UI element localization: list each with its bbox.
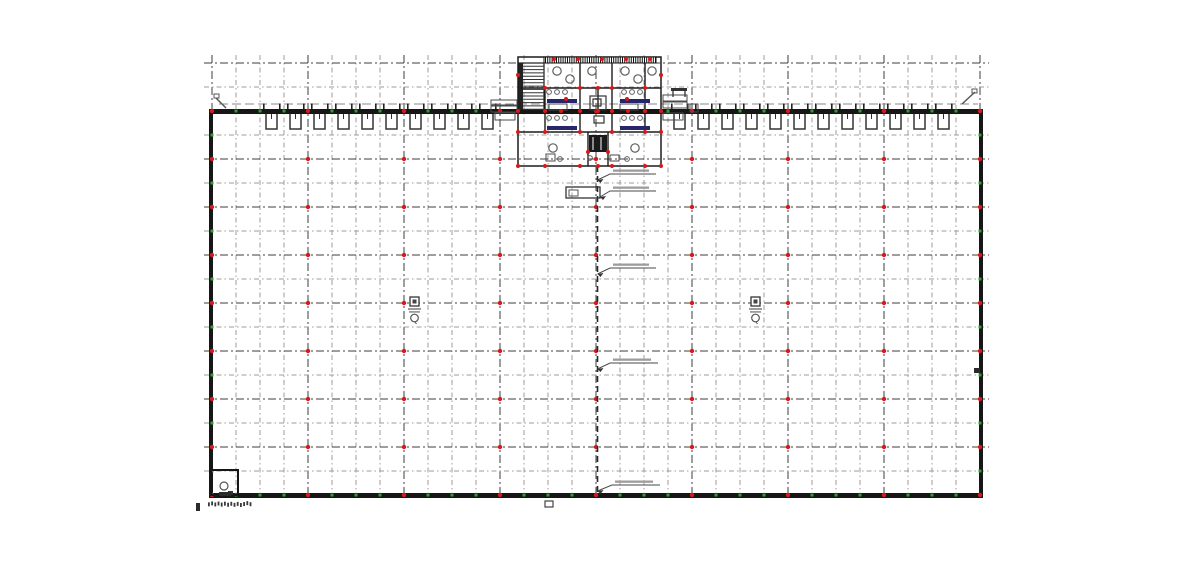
core-column-marker-red — [516, 164, 520, 168]
wall-marker-green — [715, 110, 718, 113]
grid-layer — [204, 55, 989, 493]
core-column-marker-red — [625, 97, 629, 101]
core-bench — [671, 88, 687, 91]
core-column-marker-red — [648, 57, 652, 61]
wall-marker-green — [211, 422, 214, 425]
wall-marker-green — [979, 230, 982, 233]
equipment-label-smudge — [409, 311, 420, 313]
dock-bumper — [407, 104, 409, 110]
column-marker-red — [978, 157, 982, 161]
wall-marker-green — [379, 110, 382, 113]
core-column-marker-red — [624, 57, 628, 61]
core-column-marker-red — [552, 57, 556, 61]
dock-bumper — [351, 104, 353, 110]
wall-marker-green — [211, 230, 214, 233]
core-fixture-circle — [634, 75, 642, 83]
equipment-label-smudge — [749, 308, 762, 310]
column-marker-red — [306, 493, 310, 497]
core-fixture-circle — [588, 67, 596, 75]
wall-marker-green — [979, 134, 982, 137]
dock-bumper — [831, 104, 833, 110]
column-marker-red — [498, 349, 502, 353]
dock-bumper — [375, 104, 377, 110]
dock-bumper — [815, 104, 817, 110]
core-fixture — [663, 95, 687, 101]
dock-bumper — [767, 104, 769, 110]
core-column-marker-red — [643, 109, 647, 113]
title-text-smudge — [246, 501, 248, 505]
dock-bumper — [935, 104, 937, 110]
equipment-symbol-layer — [408, 297, 762, 324]
column-marker-red — [786, 397, 790, 401]
wall-marker-green — [715, 494, 718, 497]
dock-bumper — [911, 104, 913, 110]
column-marker-red — [690, 493, 694, 497]
dock-door-layer — [263, 104, 953, 130]
core-column-marker-red — [659, 73, 663, 77]
wall-marker-green — [355, 494, 358, 497]
equipment-panel-inner — [413, 300, 417, 304]
annotation-text-smudge — [615, 481, 653, 483]
dock-bumper — [455, 104, 457, 110]
dock-bumper — [839, 104, 841, 110]
dock-bumper — [327, 104, 329, 110]
wall-marker-green — [955, 110, 958, 113]
core-fixture-circle-small — [630, 90, 635, 95]
core-column-marker-red — [543, 130, 547, 134]
column-marker-red — [306, 157, 310, 161]
core-fixture-circle-small — [563, 116, 568, 121]
column-marker-red — [786, 445, 790, 449]
core-column-marker-red — [586, 150, 590, 154]
wall-marker-green — [907, 494, 910, 497]
wall-marker-green — [979, 422, 982, 425]
wall-marker-green — [379, 494, 382, 497]
column-marker-red — [402, 493, 406, 497]
core-column-marker-red — [596, 164, 600, 168]
core-column-marker-red — [596, 86, 600, 90]
equipment-drain-symbol — [752, 314, 760, 322]
column-marker-red — [690, 349, 694, 353]
floor-plan-page — [0, 0, 1200, 569]
core-column-marker-red — [659, 109, 663, 113]
floor-plan-canvas — [0, 0, 1200, 569]
core-fixture-circle — [621, 67, 629, 75]
core-column-marker-red — [543, 109, 547, 113]
misc-mark — [219, 492, 231, 496]
annotation-text-smudge — [613, 264, 649, 266]
column-marker-red — [306, 205, 310, 209]
column-marker-red — [210, 205, 214, 209]
dock-bumper — [423, 104, 425, 110]
dock-bumper — [303, 104, 305, 110]
core-fixture-circle — [549, 144, 557, 152]
column-marker-red — [978, 253, 982, 257]
column-marker-red — [498, 493, 502, 497]
column-marker-red — [882, 253, 886, 257]
wall-marker-green — [451, 110, 454, 113]
dock-bumper — [903, 104, 905, 110]
leader-line — [600, 191, 656, 197]
core-column-marker-red — [564, 97, 568, 101]
title-text-smudge — [250, 502, 252, 506]
dock-bumper — [807, 104, 809, 110]
core-column-marker-red — [543, 164, 547, 168]
core-column-marker-red — [600, 57, 604, 61]
wall-marker-green — [739, 494, 742, 497]
wall-marker-green — [355, 110, 358, 113]
annotation-text-smudge — [613, 187, 649, 189]
core-column-marker-red — [610, 86, 614, 90]
wall-marker-green — [739, 110, 742, 113]
core-column-marker-red — [543, 86, 547, 90]
core-fixture-circle — [566, 75, 574, 83]
core-fixture — [663, 102, 687, 108]
column-marker-red — [690, 397, 694, 401]
core-fixture — [495, 113, 515, 120]
dock-bumper — [359, 104, 361, 110]
column-marker-red — [306, 349, 310, 353]
wall-marker-green — [979, 278, 982, 281]
wall-marker-green — [763, 494, 766, 497]
wall-marker-green — [523, 494, 526, 497]
column-marker-red — [402, 301, 406, 305]
wall-marker-green — [667, 110, 670, 113]
corner-room-layer — [211, 470, 238, 495]
wall-marker-green — [931, 110, 934, 113]
ramp-line — [216, 98, 226, 108]
core-column-marker-red — [516, 109, 520, 113]
column-marker-red — [210, 397, 214, 401]
dock-bumper — [479, 104, 481, 110]
column-marker-red — [690, 205, 694, 209]
column-marker-red — [978, 109, 982, 113]
core-column-marker-red — [596, 109, 600, 113]
column-marker-red — [498, 301, 502, 305]
wall-marker-green — [763, 110, 766, 113]
core-column-marker-red — [610, 109, 614, 113]
wall-marker-green — [259, 110, 262, 113]
dock-bumper — [783, 104, 785, 110]
elevator-shaft — [589, 135, 607, 152]
core-fixture-circle-small — [563, 90, 568, 95]
column-marker-red — [882, 157, 886, 161]
core-column-marker-red — [643, 130, 647, 134]
column-marker-red — [402, 253, 406, 257]
joint-detail-box-inner — [569, 190, 578, 196]
core-fixture-circle — [648, 67, 656, 75]
ramp-line — [962, 92, 975, 104]
core-column-marker-red — [578, 86, 582, 90]
restroom-counter — [620, 99, 650, 103]
core-fixture-circle-small — [547, 116, 552, 121]
wall-marker-green — [979, 326, 982, 329]
title-text-smudge — [214, 502, 216, 506]
core-fixture — [610, 155, 619, 161]
dock-bumper — [791, 104, 793, 110]
wall-marker-green — [547, 494, 550, 497]
dock-bumper — [399, 104, 401, 110]
column-marker-red — [882, 493, 886, 497]
annotation-text-smudge — [613, 359, 651, 361]
restroom-counter — [620, 126, 650, 130]
misc-mark — [545, 501, 553, 507]
ramp-mark — [214, 94, 219, 98]
core-fixture-circle-small — [547, 90, 552, 95]
misc-mark — [974, 368, 980, 373]
wall-marker-green — [619, 494, 622, 497]
column-marker-red — [786, 253, 790, 257]
wall-marker-green — [283, 110, 286, 113]
title-text-smudge — [243, 502, 245, 506]
column-marker-red — [882, 205, 886, 209]
dock-bumper — [383, 104, 385, 110]
equipment-label-smudge — [750, 311, 761, 313]
column-marker-red — [882, 397, 886, 401]
wall-marker-green — [859, 494, 862, 497]
core-column-marker-red — [578, 109, 582, 113]
expansion-joint-layer — [566, 166, 660, 494]
core-fixture-circle — [631, 144, 639, 152]
wall-marker-green — [475, 110, 478, 113]
core-column-marker-red — [610, 130, 614, 134]
title-text-smudge — [208, 502, 210, 506]
column-marker-red — [402, 157, 406, 161]
dock-bumper — [879, 104, 881, 110]
dock-bumper — [711, 104, 713, 110]
dock-bumper — [263, 104, 265, 110]
core-column-marker-red — [643, 164, 647, 168]
dock-bumper — [279, 104, 281, 110]
column-marker-red — [498, 157, 502, 161]
core-fixture-circle-small — [638, 90, 643, 95]
column-marker-red — [402, 349, 406, 353]
column-marker-red — [210, 301, 214, 305]
dock-bumper — [287, 104, 289, 110]
misc-mark — [196, 503, 200, 511]
core-column-marker-red — [576, 57, 580, 61]
column-marker-red — [978, 301, 982, 305]
wall-marker-green — [427, 110, 430, 113]
dock-bumper — [863, 104, 865, 110]
corner-room-drain — [220, 482, 228, 490]
wall-marker-green — [907, 110, 910, 113]
annotation-text-smudge — [613, 170, 649, 172]
column-marker-red — [786, 205, 790, 209]
title-text-smudge — [224, 502, 226, 506]
leader-line — [598, 485, 661, 491]
dock-bumper — [951, 104, 953, 110]
wall-marker-green — [211, 326, 214, 329]
equipment-label-smudge — [408, 308, 421, 310]
core-column-marker-red — [578, 130, 582, 134]
column-marker-red — [690, 253, 694, 257]
title-text-smudge — [237, 502, 239, 506]
wall-marker-green — [235, 110, 238, 113]
column-marker-red — [786, 301, 790, 305]
dock-bumper — [735, 104, 737, 110]
wall-marker-green — [667, 494, 670, 497]
wall-marker-green — [979, 374, 982, 377]
dock-bumper — [431, 104, 433, 110]
core-fixture-circle-small — [622, 116, 627, 121]
column-marker-red — [402, 445, 406, 449]
restroom-counter — [547, 126, 577, 130]
core-column-marker-red — [626, 109, 630, 113]
column-marker-red — [402, 205, 406, 209]
core-fixture — [546, 154, 555, 161]
title-text-smudge — [221, 503, 223, 507]
column-marker-red — [402, 109, 406, 113]
dock-bumper — [447, 104, 449, 110]
column-marker-red — [210, 253, 214, 257]
column-marker-red — [594, 157, 598, 161]
wall-marker-green — [451, 494, 454, 497]
wall-marker-green — [643, 494, 646, 497]
dock-bumper — [927, 104, 929, 110]
dock-bumper — [471, 104, 473, 110]
leader-line — [598, 268, 657, 274]
wall-marker-green — [571, 494, 574, 497]
title-text-smudge — [227, 503, 229, 507]
column-marker-red — [210, 109, 214, 113]
column-marker-red — [690, 157, 694, 161]
column-marker-red — [690, 445, 694, 449]
core-column-marker-red — [516, 73, 520, 77]
wall-marker-green — [955, 494, 958, 497]
core-column-marker-red — [559, 109, 563, 113]
column-marker-red — [786, 157, 790, 161]
column-marker-red — [498, 445, 502, 449]
dock-bumper — [855, 104, 857, 110]
wall-marker-green — [475, 494, 478, 497]
wall-marker-green — [427, 494, 430, 497]
column-marker-red — [210, 445, 214, 449]
wall-marker-green — [283, 494, 286, 497]
column-marker-red — [402, 397, 406, 401]
title-text-smudge — [218, 502, 220, 506]
wall-marker-green — [211, 134, 214, 137]
dock-bumper — [887, 104, 889, 110]
dock-bumper — [335, 104, 337, 110]
core-fixture-circle-small — [638, 116, 643, 121]
column-marker-red — [306, 445, 310, 449]
column-marker-red — [978, 349, 982, 353]
column-marker-red — [210, 349, 214, 353]
column-marker-red — [306, 253, 310, 257]
core-column-marker-red — [516, 130, 520, 134]
wall-marker-green — [931, 494, 934, 497]
title-text-smudge — [230, 502, 232, 506]
wall-marker-green — [859, 110, 862, 113]
core-fixture-circle-small — [555, 116, 560, 121]
wall-marker-green — [835, 110, 838, 113]
wall-marker-green — [979, 470, 982, 473]
column-marker-red — [306, 397, 310, 401]
column-marker-red — [786, 493, 790, 497]
column-marker-red — [594, 493, 598, 497]
wall-marker-green — [331, 110, 334, 113]
column-marker-red — [882, 445, 886, 449]
column-marker-red — [786, 349, 790, 353]
wall-marker-green — [811, 494, 814, 497]
column-marker-red — [786, 109, 790, 113]
column-marker-red — [882, 301, 886, 305]
column-marker-red — [978, 205, 982, 209]
wall-marker-green — [835, 494, 838, 497]
core-column-marker-red — [659, 164, 663, 168]
wall-marker-green — [811, 110, 814, 113]
leader-line — [598, 174, 657, 180]
core-column-marker-red — [643, 86, 647, 90]
core-fixture-circle-small — [622, 90, 627, 95]
column-marker-red — [498, 253, 502, 257]
title-text-smudge — [211, 501, 213, 505]
column-marker-red — [306, 301, 310, 305]
core-column-marker-red — [606, 150, 610, 154]
wall-marker-green — [331, 494, 334, 497]
column-marker-red — [882, 349, 886, 353]
equipment-drain-symbol — [411, 314, 419, 322]
dock-bumper — [759, 104, 761, 110]
dock-bumper — [311, 104, 313, 110]
column-marker-red — [882, 109, 886, 113]
core-fixture-circle-small — [555, 90, 560, 95]
wall-marker-green — [211, 278, 214, 281]
core-column-marker-red — [578, 164, 582, 168]
column-marker-red — [978, 445, 982, 449]
core-fixture-circle-small — [630, 116, 635, 121]
core-equipment-box — [593, 99, 601, 106]
column-marker-red — [210, 157, 214, 161]
wall-marker-green — [259, 494, 262, 497]
core-column-marker-red — [610, 164, 614, 168]
core-stair-rail — [519, 63, 523, 110]
column-marker-red — [690, 301, 694, 305]
leader-line — [598, 363, 659, 369]
equipment-panel-inner — [754, 300, 758, 304]
wall-marker-green — [211, 374, 214, 377]
column-marker-red — [978, 493, 982, 497]
column-marker-red — [498, 205, 502, 209]
dock-bumper — [743, 104, 745, 110]
column-marker-red — [978, 397, 982, 401]
core-column-marker-red — [659, 130, 663, 134]
wall-marker-green — [979, 182, 982, 185]
dock-bumper — [719, 104, 721, 110]
column-marker-red — [306, 109, 310, 113]
core-fixture-circle — [553, 67, 561, 75]
wall-marker-green — [211, 182, 214, 185]
column-marker-red — [498, 397, 502, 401]
title-text-smudge — [240, 503, 242, 507]
title-text-smudge — [234, 503, 236, 507]
restroom-counter — [547, 99, 577, 103]
